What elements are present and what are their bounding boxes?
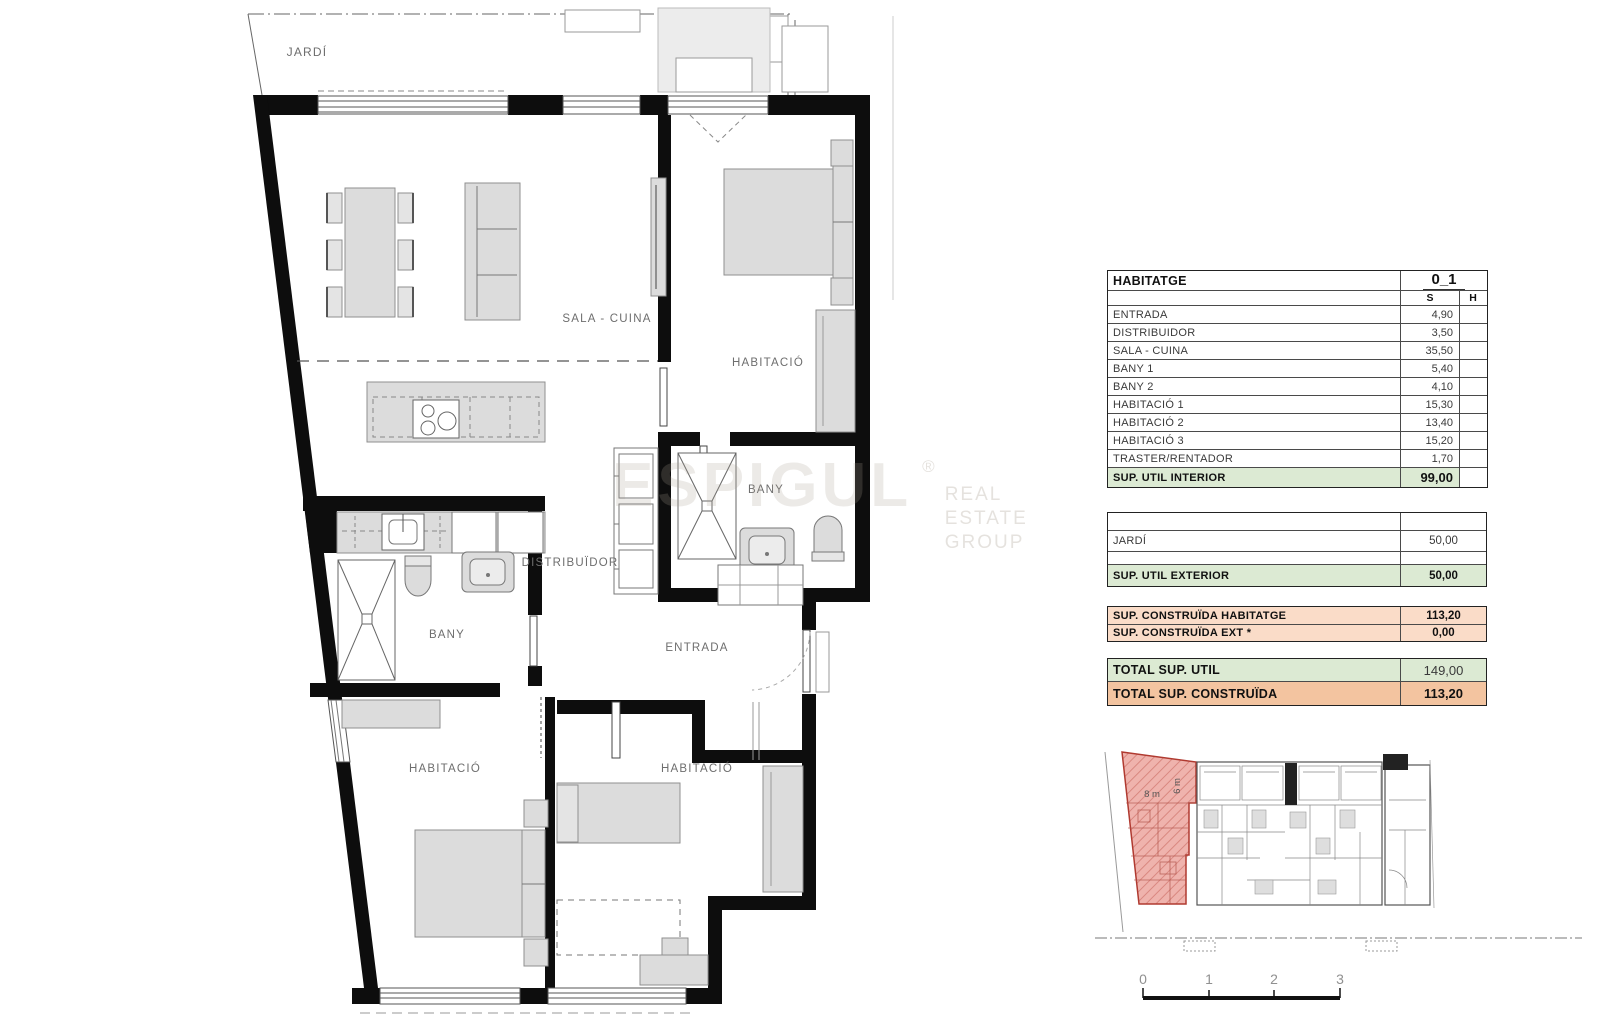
door-bedroom3 [612,702,620,758]
neighbour-terrace [565,8,828,92]
room-label-distribuidor: DISTRIBUÏDOR [522,557,619,569]
bed-2 [415,800,548,966]
table-row: HABITACIÓ 1 15,30 [1108,395,1487,413]
table-row: ENTRADA 4,90 [1108,305,1487,323]
table-row: TRASTER/RENTADOR 1,70 [1108,449,1487,467]
total-util-row: TOTAL SUP. UTIL 149,00 [1108,659,1486,681]
dining-table [327,188,413,317]
bed-1 [724,140,853,305]
site-plan: 8 m 6 m [1095,752,1582,951]
exterior-total-row: SUP. UTIL EXTERIOR 50,00 [1108,564,1486,586]
table-row: SUP. CONSTRUÏDA EXT * 0,00 [1108,624,1486,641]
door-bany2 [530,616,537,666]
area-table-exterior: JARDÍ 50,00 SUP. UTIL EXTERIOR 50,00 [1107,512,1487,587]
toilet-2 [405,556,431,596]
laundry-counter [337,512,545,553]
table-row: JARDÍ 50,00 [1108,530,1486,551]
scale-bar: 0 1 2 3 [1139,971,1344,998]
room-label-entrada: ENTRADA [665,642,728,654]
table-row: SALA - CUINA 35,50 [1108,341,1487,359]
shower-2 [338,560,395,680]
door-entry [803,630,810,692]
table-subheader-row: S H [1108,290,1487,305]
site-stair-core [1383,754,1408,770]
area-table-construida: SUP. CONSTRUÏDA HABITATGE 113,20 SUP. CO… [1107,606,1487,642]
room-label-habitacio-2: HABITACIÓ [409,762,481,775]
table-row: BANY 1 5,40 [1108,359,1487,377]
scale-tick-2: 2 [1270,971,1278,987]
door-bedroom1 [660,368,667,426]
desk-2 [640,955,708,985]
page: JARDÍ SALA - CUINA HABITACIÓ BANY DISTRI… [0,0,1600,1027]
site-dim-height: 6 m [1172,778,1183,794]
storage-closet [614,448,658,594]
col-header-h: H [1459,291,1486,305]
scale-tick-1: 1 [1205,971,1213,987]
col-header-s: S [1400,291,1459,305]
unit-cell: 0_1 [1400,271,1487,290]
room-label-jardi: JARDÍ [287,44,328,59]
unit-number: 0_1 [1423,271,1464,290]
room-label-sala-cuina: SALA - CUINA [562,313,651,325]
table-header-row: HABITATGE 0_1 [1108,271,1487,290]
room-label-habitacio-1: HABITACIÓ [732,356,804,369]
table-row: DISTRIBUIDOR 3,50 [1108,323,1487,341]
room-label-bany-1: BANY [748,484,784,496]
kitchen-island [367,382,545,442]
table-row: HABITACIÓ 2 13,40 [1108,413,1487,431]
area-table-totals: TOTAL SUP. UTIL 149,00 TOTAL SUP. CONSTR… [1107,658,1487,706]
tv-unit [651,178,666,296]
entry-closet [718,565,803,605]
table-row: BANY 2 4,10 [1108,377,1487,395]
toilet-1 [812,516,844,561]
table-row: HABITACIÓ 3 15,20 [1108,431,1487,449]
table-row: SUP. CONSTRUÏDA HABITATGE 113,20 [1108,607,1486,624]
scale-tick-0: 0 [1139,971,1147,987]
site-dim-width: 8 m [1144,789,1160,800]
shower-1 [678,453,736,559]
side-table [662,938,688,955]
room-label-habitacio-3: HABITACIÓ [661,762,733,775]
room-label-bany-2: BANY [429,629,465,641]
wardrobe-1 [816,310,855,432]
sofa [465,183,520,320]
wardrobe-2 [753,702,803,892]
total-construida-row: TOTAL SUP. CONSTRUÏDA 113,20 [1108,681,1486,705]
scale-tick-3: 3 [1336,971,1344,987]
interior-total-row: SUP. UTIL INTERIOR 99,00 [1108,467,1487,487]
table-title: HABITATGE [1108,271,1400,290]
sink-2 [462,552,514,592]
bed-3 [557,783,680,843]
desk-shelf [342,700,440,728]
area-table-interior: HABITATGE 0_1 S H ENTRADA 4,90 DISTRIBUI… [1107,270,1488,488]
